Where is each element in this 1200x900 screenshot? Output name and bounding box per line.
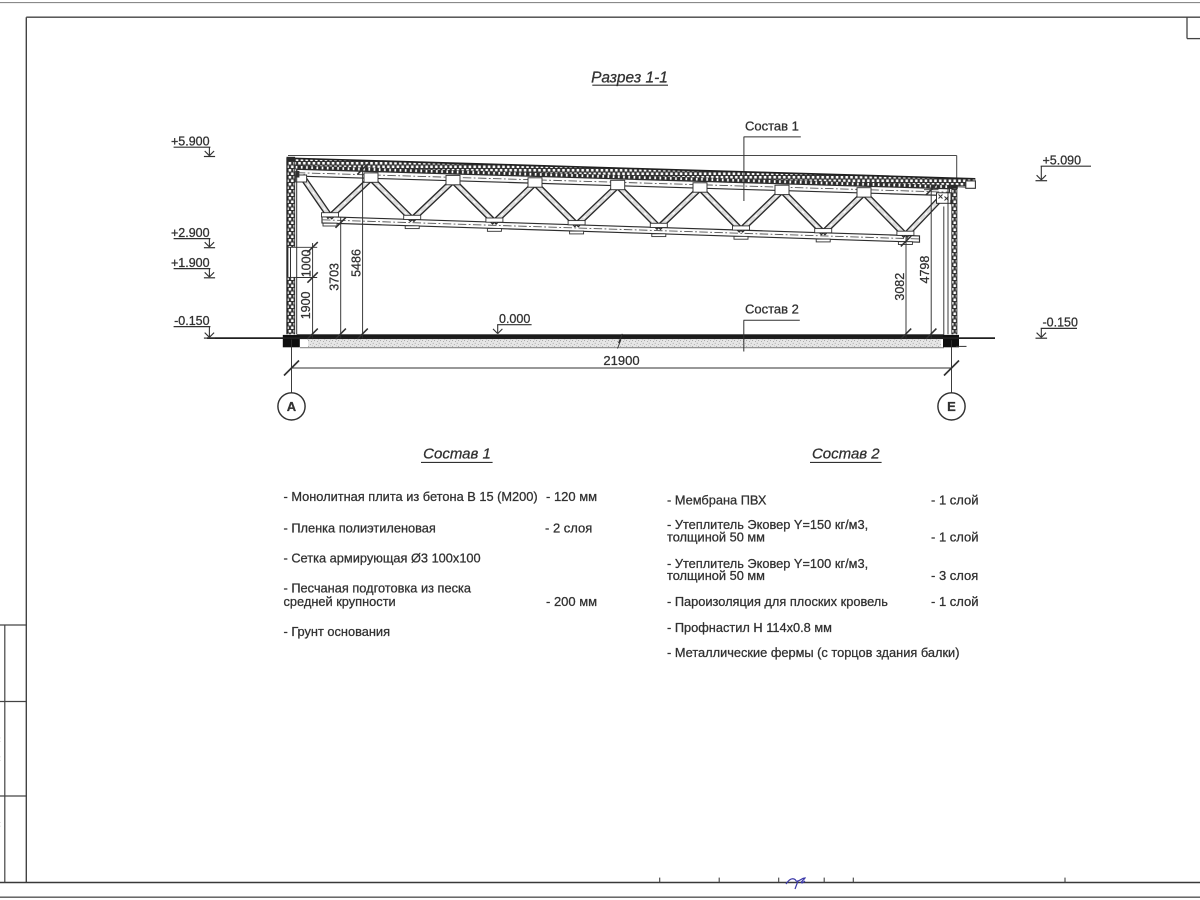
svg-text:- 2 слоя: - 2 слоя [545, 520, 592, 535]
svg-text:- 120 мм: - 120 мм [546, 489, 597, 504]
svg-text:1900: 1900 [299, 291, 313, 319]
svg-text:- Монолитная плита из бетона В: - Монолитная плита из бетона В 15 (М200) [284, 489, 538, 504]
svg-text:-0.150: -0.150 [1043, 316, 1078, 330]
svg-text:- 3 слоя: - 3 слоя [931, 568, 978, 583]
svg-text:Разрез 1-1: Разрез 1-1 [591, 70, 668, 87]
svg-text:- Пленка полиэтиленовая: - Пленка полиэтиленовая [284, 520, 436, 535]
svg-text:средней крупности: средней крупности [284, 594, 396, 609]
svg-text:Е: Е [947, 399, 956, 414]
svg-text:- 1 слой: - 1 слой [931, 530, 979, 545]
svg-text:Подп. и дата: Подп. и дата [0, 725, 1, 770]
svg-text:- 1 слой: - 1 слой [931, 594, 979, 609]
svg-text:-0.150: -0.150 [174, 314, 209, 328]
svg-text:3082: 3082 [893, 273, 907, 301]
svg-text:- 200 мм: - 200 мм [546, 594, 597, 609]
svg-text:- Пароизоляция для плоских кро: - Пароизоляция для плоских кровель [667, 594, 888, 609]
svg-text:+5.090: +5.090 [1043, 153, 1082, 167]
svg-text:- Профнастил Н 114х0.8 мм: - Профнастил Н 114х0.8 мм [667, 620, 832, 635]
svg-text:Инв. № подл.: Инв. № подл. [0, 816, 1, 863]
svg-text:+5.900: +5.900 [171, 134, 210, 148]
svg-text:- 1 слой: - 1 слой [931, 493, 979, 508]
svg-text:толщиной 50 мм: толщиной 50 мм [667, 530, 765, 545]
svg-text:0.000: 0.000 [499, 312, 530, 326]
svg-text:Состав 1: Состав 1 [423, 445, 491, 462]
svg-text:4798: 4798 [918, 256, 932, 284]
svg-text:- Грунт основания: - Грунт основания [284, 624, 391, 639]
svg-text:3703: 3703 [328, 263, 342, 291]
svg-text:Взам. инв. №: Взам. инв. № [0, 640, 1, 686]
svg-text:- Металлические фермы (с торцо: - Металлические фермы (с торцов здания б… [667, 645, 959, 660]
svg-text:21900: 21900 [603, 353, 639, 368]
svg-text:Состав 2: Состав 2 [745, 301, 799, 316]
svg-text:Состав 1: Состав 1 [745, 118, 799, 133]
svg-text:5486: 5486 [349, 249, 363, 277]
svg-text:- Сетка армирующая Ø3 100х100: - Сетка армирующая Ø3 100х100 [284, 550, 481, 565]
svg-text:толщиной 50 мм: толщиной 50 мм [667, 568, 765, 583]
svg-text:+2.900: +2.900 [171, 226, 210, 240]
svg-text:- Мембрана ПВХ: - Мембрана ПВХ [667, 493, 767, 508]
svg-text:А: А [287, 399, 297, 414]
svg-text:1000: 1000 [299, 249, 313, 277]
svg-text:Состав 2: Состав 2 [812, 445, 880, 462]
svg-text:+1.900: +1.900 [171, 256, 210, 270]
